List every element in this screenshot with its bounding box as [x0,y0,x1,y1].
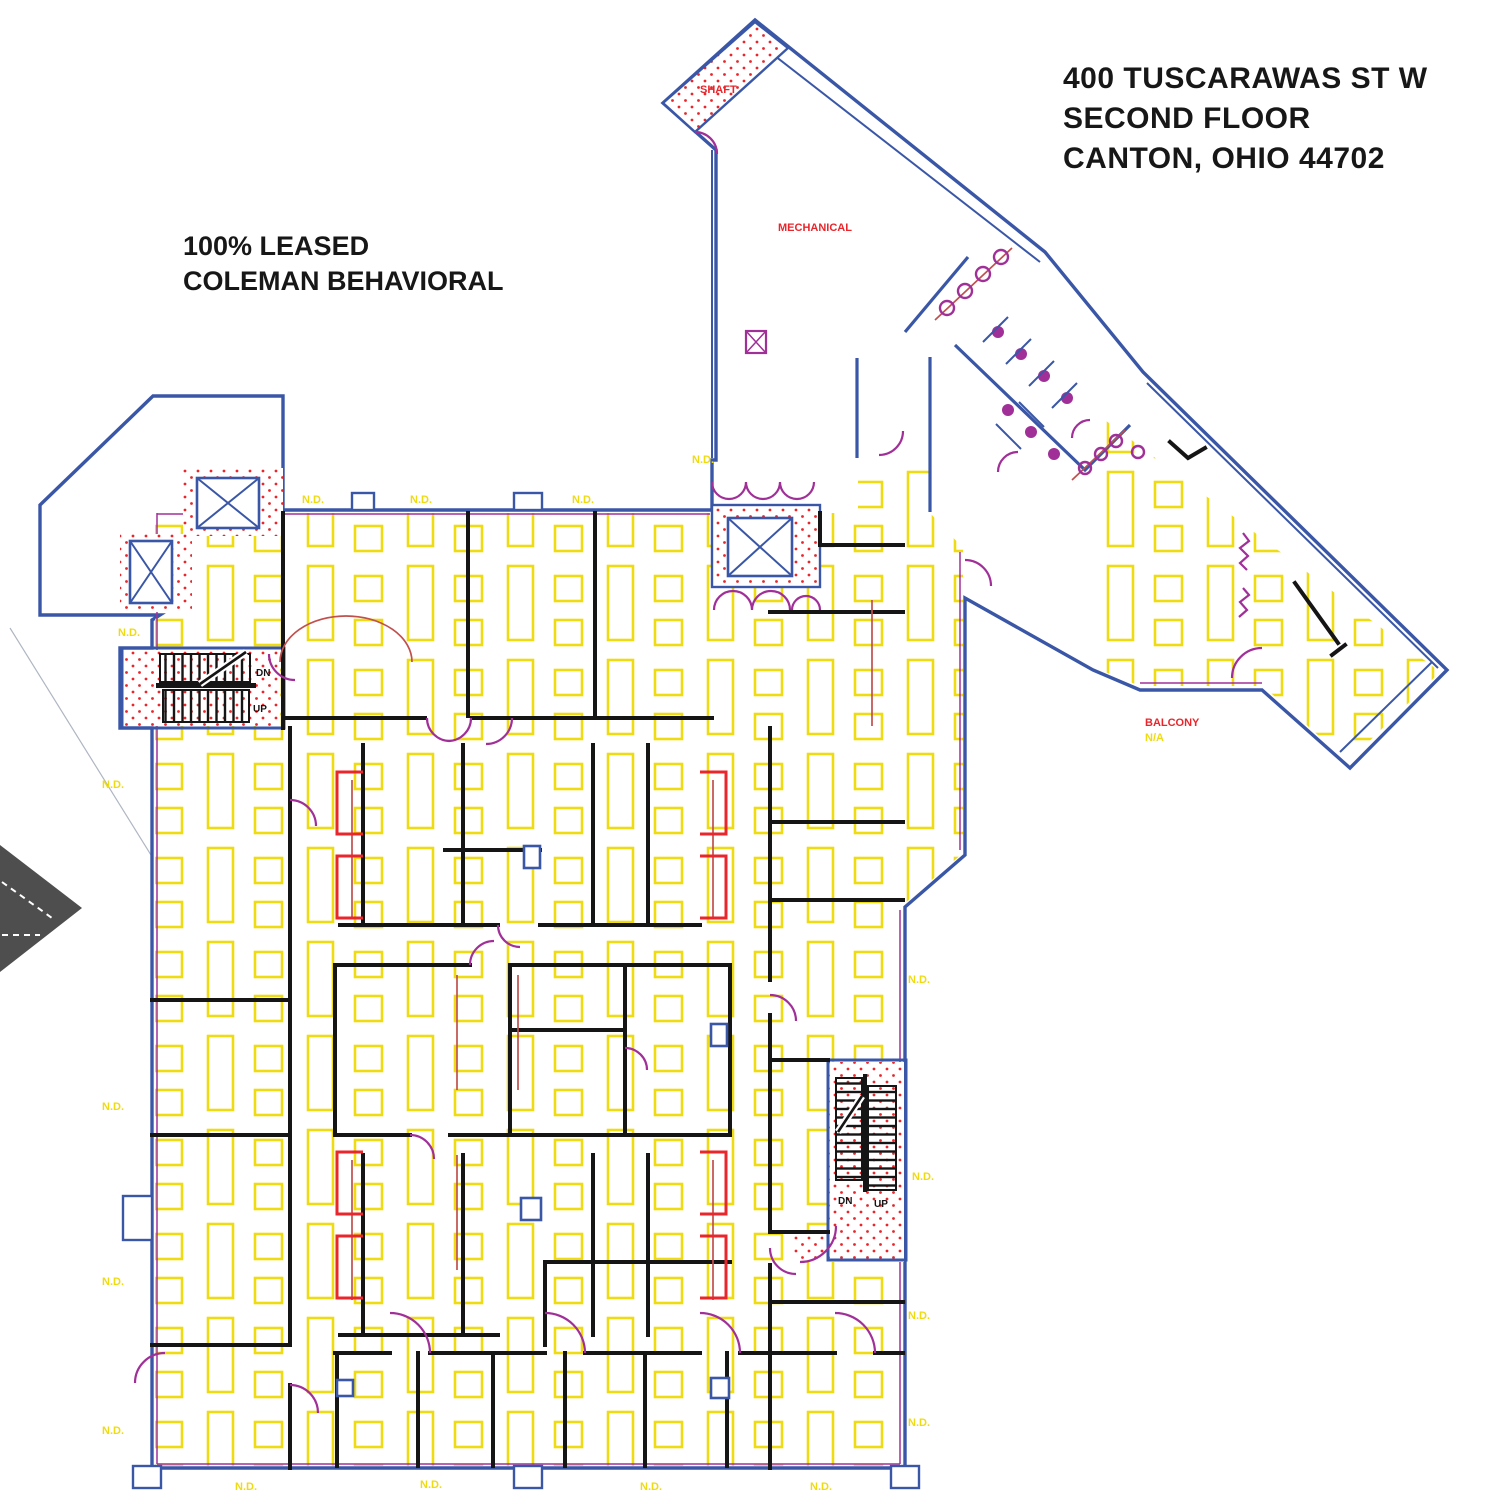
mechanical-label: MECHANICAL [778,222,852,234]
address-line-3: CANTON, OHIO 44702 [1063,142,1385,175]
nd-label: N.D. [235,1481,257,1493]
address-line-1: 400 TUSCARAWAS ST W [1063,62,1428,95]
lease-note-line-2: COLEMAN BEHAVIORAL [183,266,504,296]
nd-label: N.D. [912,1171,934,1183]
floor-plan-svg: DN UP DN UP [0,0,1500,1500]
nd-label: N.D. [118,627,140,639]
nd-label: N.D. [102,1101,124,1113]
nd-label: N.D. [102,1276,124,1288]
lease-note-line-1: 100% LEASED [183,231,369,261]
nd-label: N.D. [692,454,714,466]
nd-label: N.D. [810,1481,832,1493]
nd-label: N.D. [908,1417,930,1429]
nd-label: N.D. [420,1479,442,1491]
nd-label: N.D. [302,494,324,506]
stair-up-label: UP [253,704,267,715]
balcony-label: BALCONY [1145,717,1200,729]
nd-label: N.D. [640,1481,662,1493]
nd-label: N.D. [102,779,124,791]
shaft-label: SHAFT [700,84,737,96]
floor-plan-page: DN UP DN UP [0,0,1500,1500]
nd-label: N.D. [410,494,432,506]
nd-label: N.D. [908,974,930,986]
nd-label: N.D. [572,494,594,506]
stair-up-label-2: UP [874,1199,888,1210]
nd-label: N.D. [908,1310,930,1322]
balcony-na-label: N/A [1145,732,1164,744]
nd-label: N.D. [102,1425,124,1437]
stair-dn-label-2: DN [838,1196,852,1207]
stair-dn-label: DN [256,668,270,679]
address-line-2: SECOND FLOOR [1063,102,1311,135]
adjacent-roof-shape [0,845,82,972]
stairwell-west: DN UP [122,648,284,728]
